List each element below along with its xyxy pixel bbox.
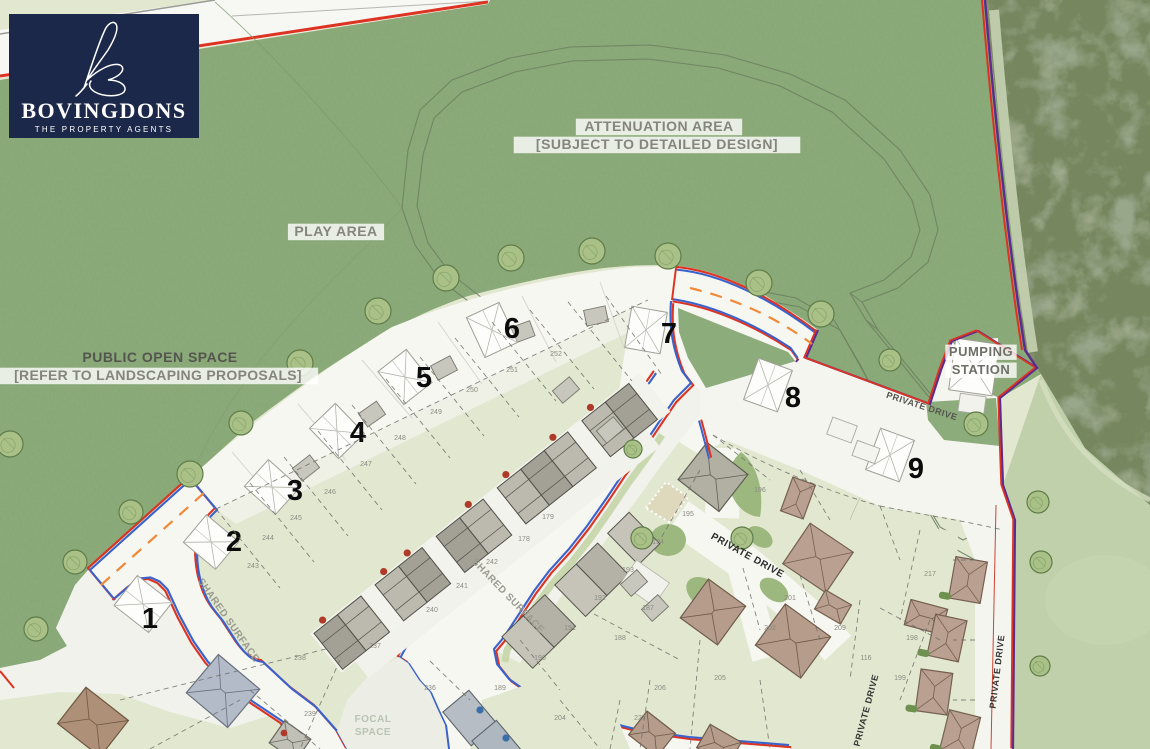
svg-text:205: 205 [714, 675, 726, 682]
svg-text:8: 8 [785, 382, 801, 414]
svg-text:ATTENUATION AREA: ATTENUATION AREA [584, 118, 733, 134]
svg-text:247: 247 [360, 461, 372, 468]
svg-text:1: 1 [142, 603, 158, 635]
svg-text:6: 6 [504, 313, 520, 345]
svg-text:PUMPING: PUMPING [949, 344, 1013, 359]
svg-text:7: 7 [661, 318, 677, 350]
svg-text:187: 187 [642, 605, 654, 612]
svg-text:STATION: STATION [952, 362, 1011, 377]
svg-text:243: 243 [247, 563, 259, 570]
svg-text:5: 5 [416, 362, 432, 394]
svg-text:250: 250 [466, 387, 478, 394]
svg-text:240: 240 [426, 607, 438, 614]
svg-text:217: 217 [924, 571, 936, 578]
svg-text:179: 179 [542, 514, 554, 521]
svg-text:193: 193 [622, 567, 634, 574]
svg-text:198: 198 [906, 635, 918, 642]
svg-text:4: 4 [350, 417, 366, 449]
svg-text:9: 9 [908, 453, 924, 485]
svg-text:204: 204 [554, 715, 566, 722]
svg-text:195: 195 [682, 511, 694, 518]
svg-text:241: 241 [456, 583, 468, 590]
svg-text:209: 209 [834, 625, 846, 632]
svg-text:[REFER TO LANDSCAPING PROPOSAL: [REFER TO LANDSCAPING PROPOSALS] [14, 367, 302, 383]
svg-text:FOCAL: FOCAL [355, 714, 392, 725]
svg-text:238: 238 [294, 655, 306, 662]
svg-text:SPACE: SPACE [355, 727, 391, 738]
svg-text:178: 178 [518, 536, 530, 543]
svg-text:202: 202 [764, 625, 776, 632]
svg-text:THE PROPERTY AGENTS: THE PROPERTY AGENTS [35, 125, 173, 134]
svg-text:239: 239 [304, 711, 316, 718]
svg-text:242: 242 [486, 559, 498, 566]
svg-text:206: 206 [654, 685, 666, 692]
svg-text:196: 196 [754, 487, 766, 494]
svg-text:191: 191 [564, 625, 576, 632]
svg-text:245: 245 [290, 515, 302, 522]
svg-text:201: 201 [784, 595, 796, 602]
svg-text:252: 252 [550, 351, 562, 358]
svg-text:189: 189 [494, 685, 506, 692]
svg-text:246: 246 [324, 489, 336, 496]
svg-text:PUBLIC OPEN SPACE: PUBLIC OPEN SPACE [82, 349, 237, 365]
svg-text:PLAY AREA: PLAY AREA [294, 223, 377, 239]
svg-text:244: 244 [262, 535, 274, 542]
svg-text:227: 227 [634, 715, 646, 722]
svg-text:249: 249 [430, 409, 442, 416]
svg-text:190: 190 [534, 655, 546, 662]
svg-text:3: 3 [287, 475, 303, 507]
svg-text:188: 188 [614, 635, 626, 642]
svg-text:251: 251 [506, 367, 518, 374]
svg-text:236: 236 [424, 685, 436, 692]
svg-text:[SUBJECT TO DETAILED DESIGN]: [SUBJECT TO DETAILED DESIGN] [536, 136, 778, 152]
svg-text:248: 248 [394, 435, 406, 442]
svg-text:192: 192 [594, 595, 606, 602]
svg-text:199: 199 [894, 675, 906, 682]
svg-text:116: 116 [860, 655, 871, 662]
svg-text:237: 237 [369, 643, 381, 650]
svg-text:BOVINGDONS: BOVINGDONS [21, 98, 186, 123]
svg-text:194: 194 [652, 539, 664, 546]
